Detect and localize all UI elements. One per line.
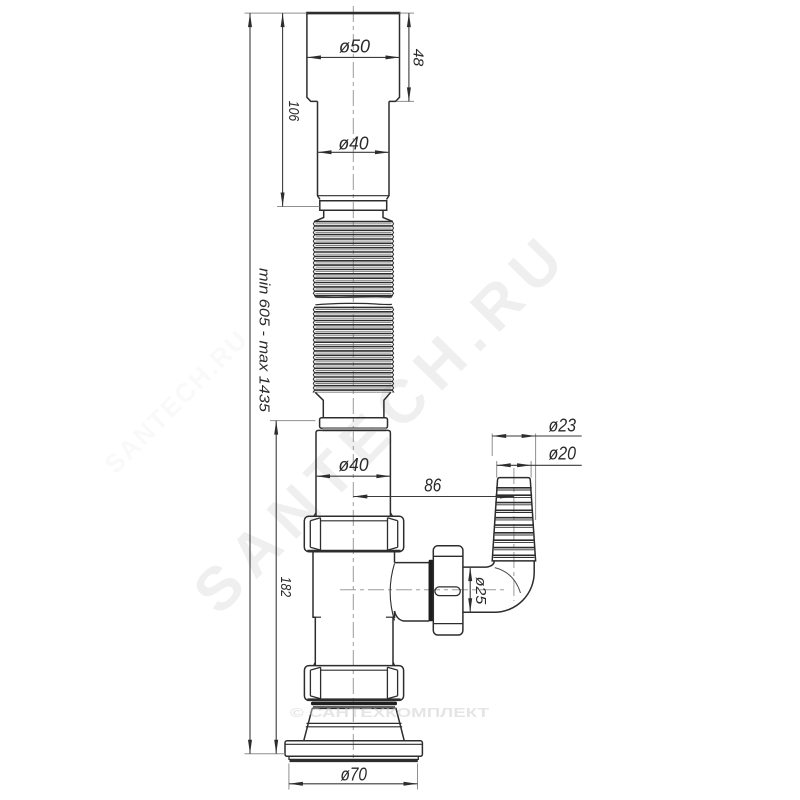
svg-text:48: 48 (410, 49, 427, 67)
svg-text:ø25: ø25 (472, 577, 489, 605)
svg-text:SANTECH.RU: SANTECH.RU (180, 218, 582, 626)
svg-text:ø40: ø40 (339, 134, 369, 154)
svg-text:ø40: ø40 (339, 455, 369, 475)
svg-text:182: 182 (277, 577, 294, 598)
svg-text:ø70: ø70 (340, 764, 367, 784)
svg-text:ø23: ø23 (549, 416, 577, 436)
svg-text:© САНТЕХКОМПЛЕКТ: © САНТЕХКОМПЛЕКТ (290, 705, 489, 720)
svg-text:min 605 - max 1435: min 605 - max 1435 (256, 268, 273, 413)
svg-text:86: 86 (424, 475, 442, 495)
svg-text:106: 106 (285, 101, 302, 122)
svg-text:SANTECH.RU: SANTECH.RU (98, 323, 254, 479)
svg-text:ø50: ø50 (339, 37, 370, 57)
svg-text:ø20: ø20 (549, 444, 577, 464)
